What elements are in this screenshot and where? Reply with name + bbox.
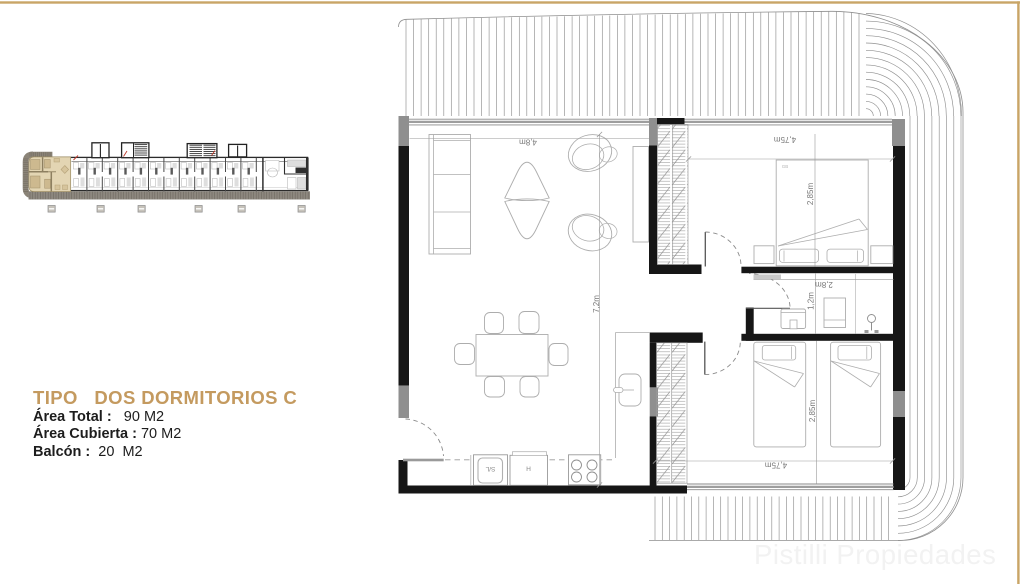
svg-text:S/L: S/L xyxy=(485,465,495,472)
svg-text:H: H xyxy=(526,465,531,472)
svg-text:4,75m: 4,75m xyxy=(774,135,797,144)
svg-text:2,85m: 2,85m xyxy=(806,183,815,206)
svg-text:2,8m: 2,8m xyxy=(815,280,833,289)
svg-text:GB: GB xyxy=(782,164,789,169)
svg-text:2,85m: 2,85m xyxy=(808,400,817,423)
svg-text:4,8m: 4,8m xyxy=(519,138,537,147)
svg-text:1,2m: 1,2m xyxy=(806,292,815,310)
svg-text:7,2m: 7,2m xyxy=(592,295,601,313)
svg-text:4,75m: 4,75m xyxy=(765,461,788,470)
